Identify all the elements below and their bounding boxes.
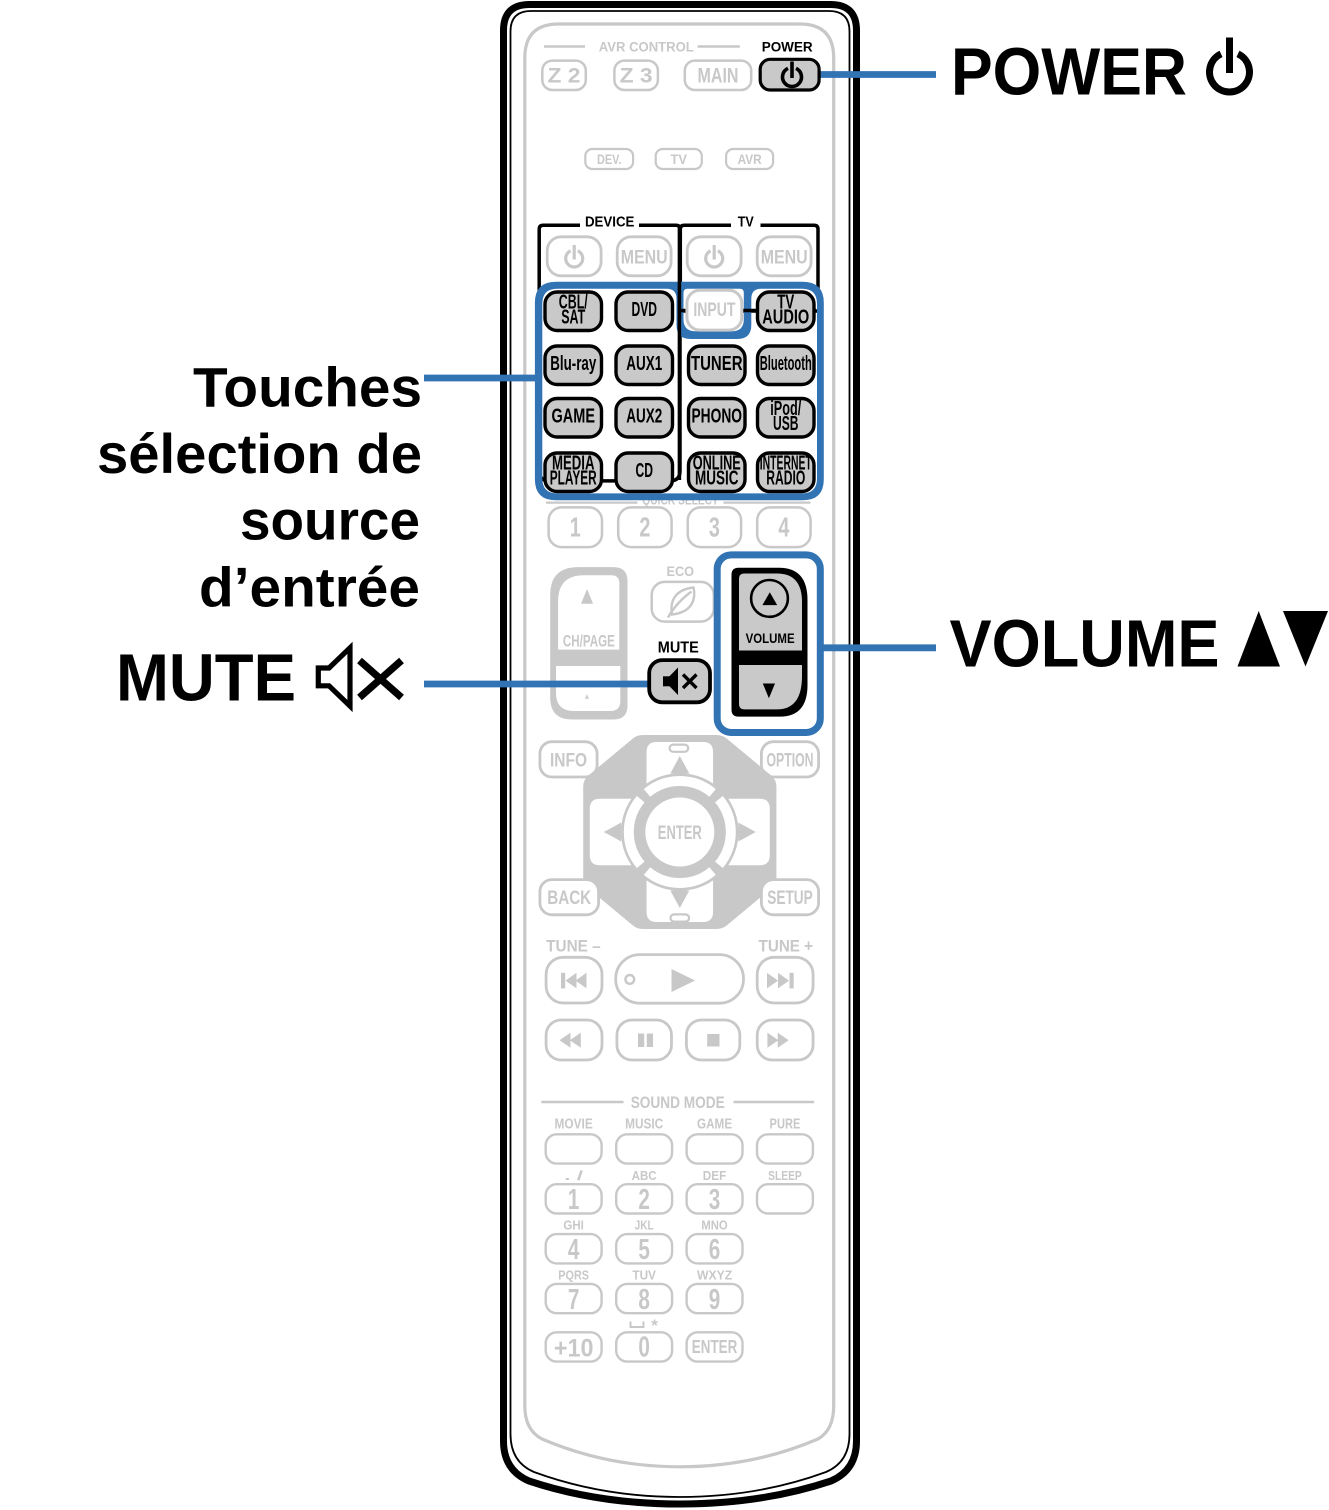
svg-text:WXYZ: WXYZ bbox=[697, 1269, 733, 1283]
svg-text:VOLUME: VOLUME bbox=[950, 607, 1220, 682]
svg-text:ENTER: ENTER bbox=[692, 1337, 738, 1357]
svg-text:0: 0 bbox=[638, 1332, 650, 1364]
svg-text:TV: TV bbox=[738, 215, 754, 231]
svg-text:d’entrée: d’entrée bbox=[199, 556, 420, 618]
svg-text:RADIO: RADIO bbox=[766, 467, 805, 489]
svg-text:MNO: MNO bbox=[701, 1219, 728, 1233]
svg-text:MUTE: MUTE bbox=[116, 640, 296, 715]
svg-text:ECO: ECO bbox=[667, 563, 695, 579]
svg-text:DEVICE: DEVICE bbox=[585, 215, 635, 231]
svg-text:1: 1 bbox=[568, 1184, 580, 1216]
svg-text:DVD: DVD bbox=[632, 299, 658, 321]
svg-text:GHI: GHI bbox=[563, 1219, 584, 1233]
svg-text:BACK: BACK bbox=[547, 888, 591, 909]
svg-text:POWER: POWER bbox=[762, 40, 813, 55]
svg-text:GAME: GAME bbox=[697, 1117, 732, 1133]
svg-text:Bluetooth: Bluetooth bbox=[760, 353, 812, 375]
svg-text:7: 7 bbox=[568, 1284, 580, 1316]
svg-text:AUDIO: AUDIO bbox=[762, 306, 809, 328]
svg-text:AVR CONTROL: AVR CONTROL bbox=[599, 40, 694, 55]
svg-text:SAT: SAT bbox=[561, 306, 585, 328]
svg-text:INPUT: INPUT bbox=[693, 300, 735, 321]
svg-text:PQRS: PQRS bbox=[558, 1269, 589, 1283]
svg-text:AUX2: AUX2 bbox=[626, 406, 662, 428]
svg-text:sélection de: sélection de bbox=[97, 423, 422, 485]
svg-text:4: 4 bbox=[568, 1234, 580, 1266]
svg-text:USB: USB bbox=[773, 413, 799, 435]
svg-text:INFO: INFO bbox=[550, 750, 587, 771]
svg-text:4: 4 bbox=[778, 512, 789, 543]
svg-text:8: 8 bbox=[638, 1284, 650, 1316]
svg-text:TUV: TUV bbox=[632, 1269, 656, 1283]
svg-text:MAIN: MAIN bbox=[698, 65, 739, 88]
svg-text:3: 3 bbox=[709, 1184, 721, 1216]
svg-text:PURE: PURE bbox=[770, 1117, 801, 1133]
svg-text:SOUND MODE: SOUND MODE bbox=[631, 1094, 725, 1112]
svg-text:CD: CD bbox=[636, 460, 654, 482]
svg-text:OPTION: OPTION bbox=[767, 750, 814, 771]
svg-text:TUNE –: TUNE – bbox=[546, 937, 601, 955]
svg-text:TUNER: TUNER bbox=[691, 353, 743, 375]
svg-text:DEF: DEF bbox=[703, 1169, 727, 1183]
svg-text:SETUP: SETUP bbox=[767, 888, 813, 909]
svg-text:VOLUME: VOLUME bbox=[746, 631, 795, 646]
svg-text:6: 6 bbox=[709, 1234, 721, 1266]
svg-text:1: 1 bbox=[570, 512, 581, 543]
svg-text:CH/PAGE: CH/PAGE bbox=[563, 633, 615, 651]
svg-text:. /: . / bbox=[564, 1169, 584, 1183]
svg-text:9: 9 bbox=[709, 1284, 721, 1316]
svg-text:Z 2: Z 2 bbox=[548, 65, 581, 88]
svg-text:ABC: ABC bbox=[632, 1169, 657, 1183]
svg-text:+10: +10 bbox=[554, 1335, 594, 1363]
svg-text:MUSIC: MUSIC bbox=[695, 467, 739, 489]
svg-text:AVR: AVR bbox=[738, 151, 762, 167]
svg-text:source: source bbox=[240, 490, 420, 552]
svg-text:TUNE +: TUNE + bbox=[759, 937, 814, 955]
svg-text:MENU: MENU bbox=[621, 247, 668, 268]
svg-text:GAME: GAME bbox=[552, 406, 596, 428]
svg-text:5: 5 bbox=[638, 1234, 650, 1266]
svg-text:Touches: Touches bbox=[193, 357, 422, 419]
svg-text:ENTER: ENTER bbox=[658, 822, 702, 844]
svg-text:AUX1: AUX1 bbox=[626, 353, 662, 375]
svg-text:3: 3 bbox=[709, 512, 720, 543]
svg-text:2: 2 bbox=[638, 1184, 650, 1216]
svg-text:PHONO: PHONO bbox=[692, 406, 743, 428]
svg-text:PLAYER: PLAYER bbox=[550, 467, 597, 489]
svg-text:MUSIC: MUSIC bbox=[625, 1117, 664, 1133]
svg-text:Z 3: Z 3 bbox=[620, 65, 653, 88]
svg-text:SLEEP: SLEEP bbox=[768, 1169, 802, 1183]
svg-text:JKL: JKL bbox=[635, 1219, 654, 1233]
svg-text:Blu-ray: Blu-ray bbox=[550, 353, 597, 375]
svg-text:TV: TV bbox=[670, 151, 687, 167]
svg-text:MENU: MENU bbox=[761, 247, 808, 268]
svg-text:DEV.: DEV. bbox=[597, 151, 622, 167]
svg-text:POWER: POWER bbox=[951, 35, 1187, 110]
svg-text:MUTE: MUTE bbox=[658, 640, 699, 657]
svg-text:MOVIE: MOVIE bbox=[555, 1117, 593, 1133]
svg-text:2: 2 bbox=[639, 512, 650, 543]
